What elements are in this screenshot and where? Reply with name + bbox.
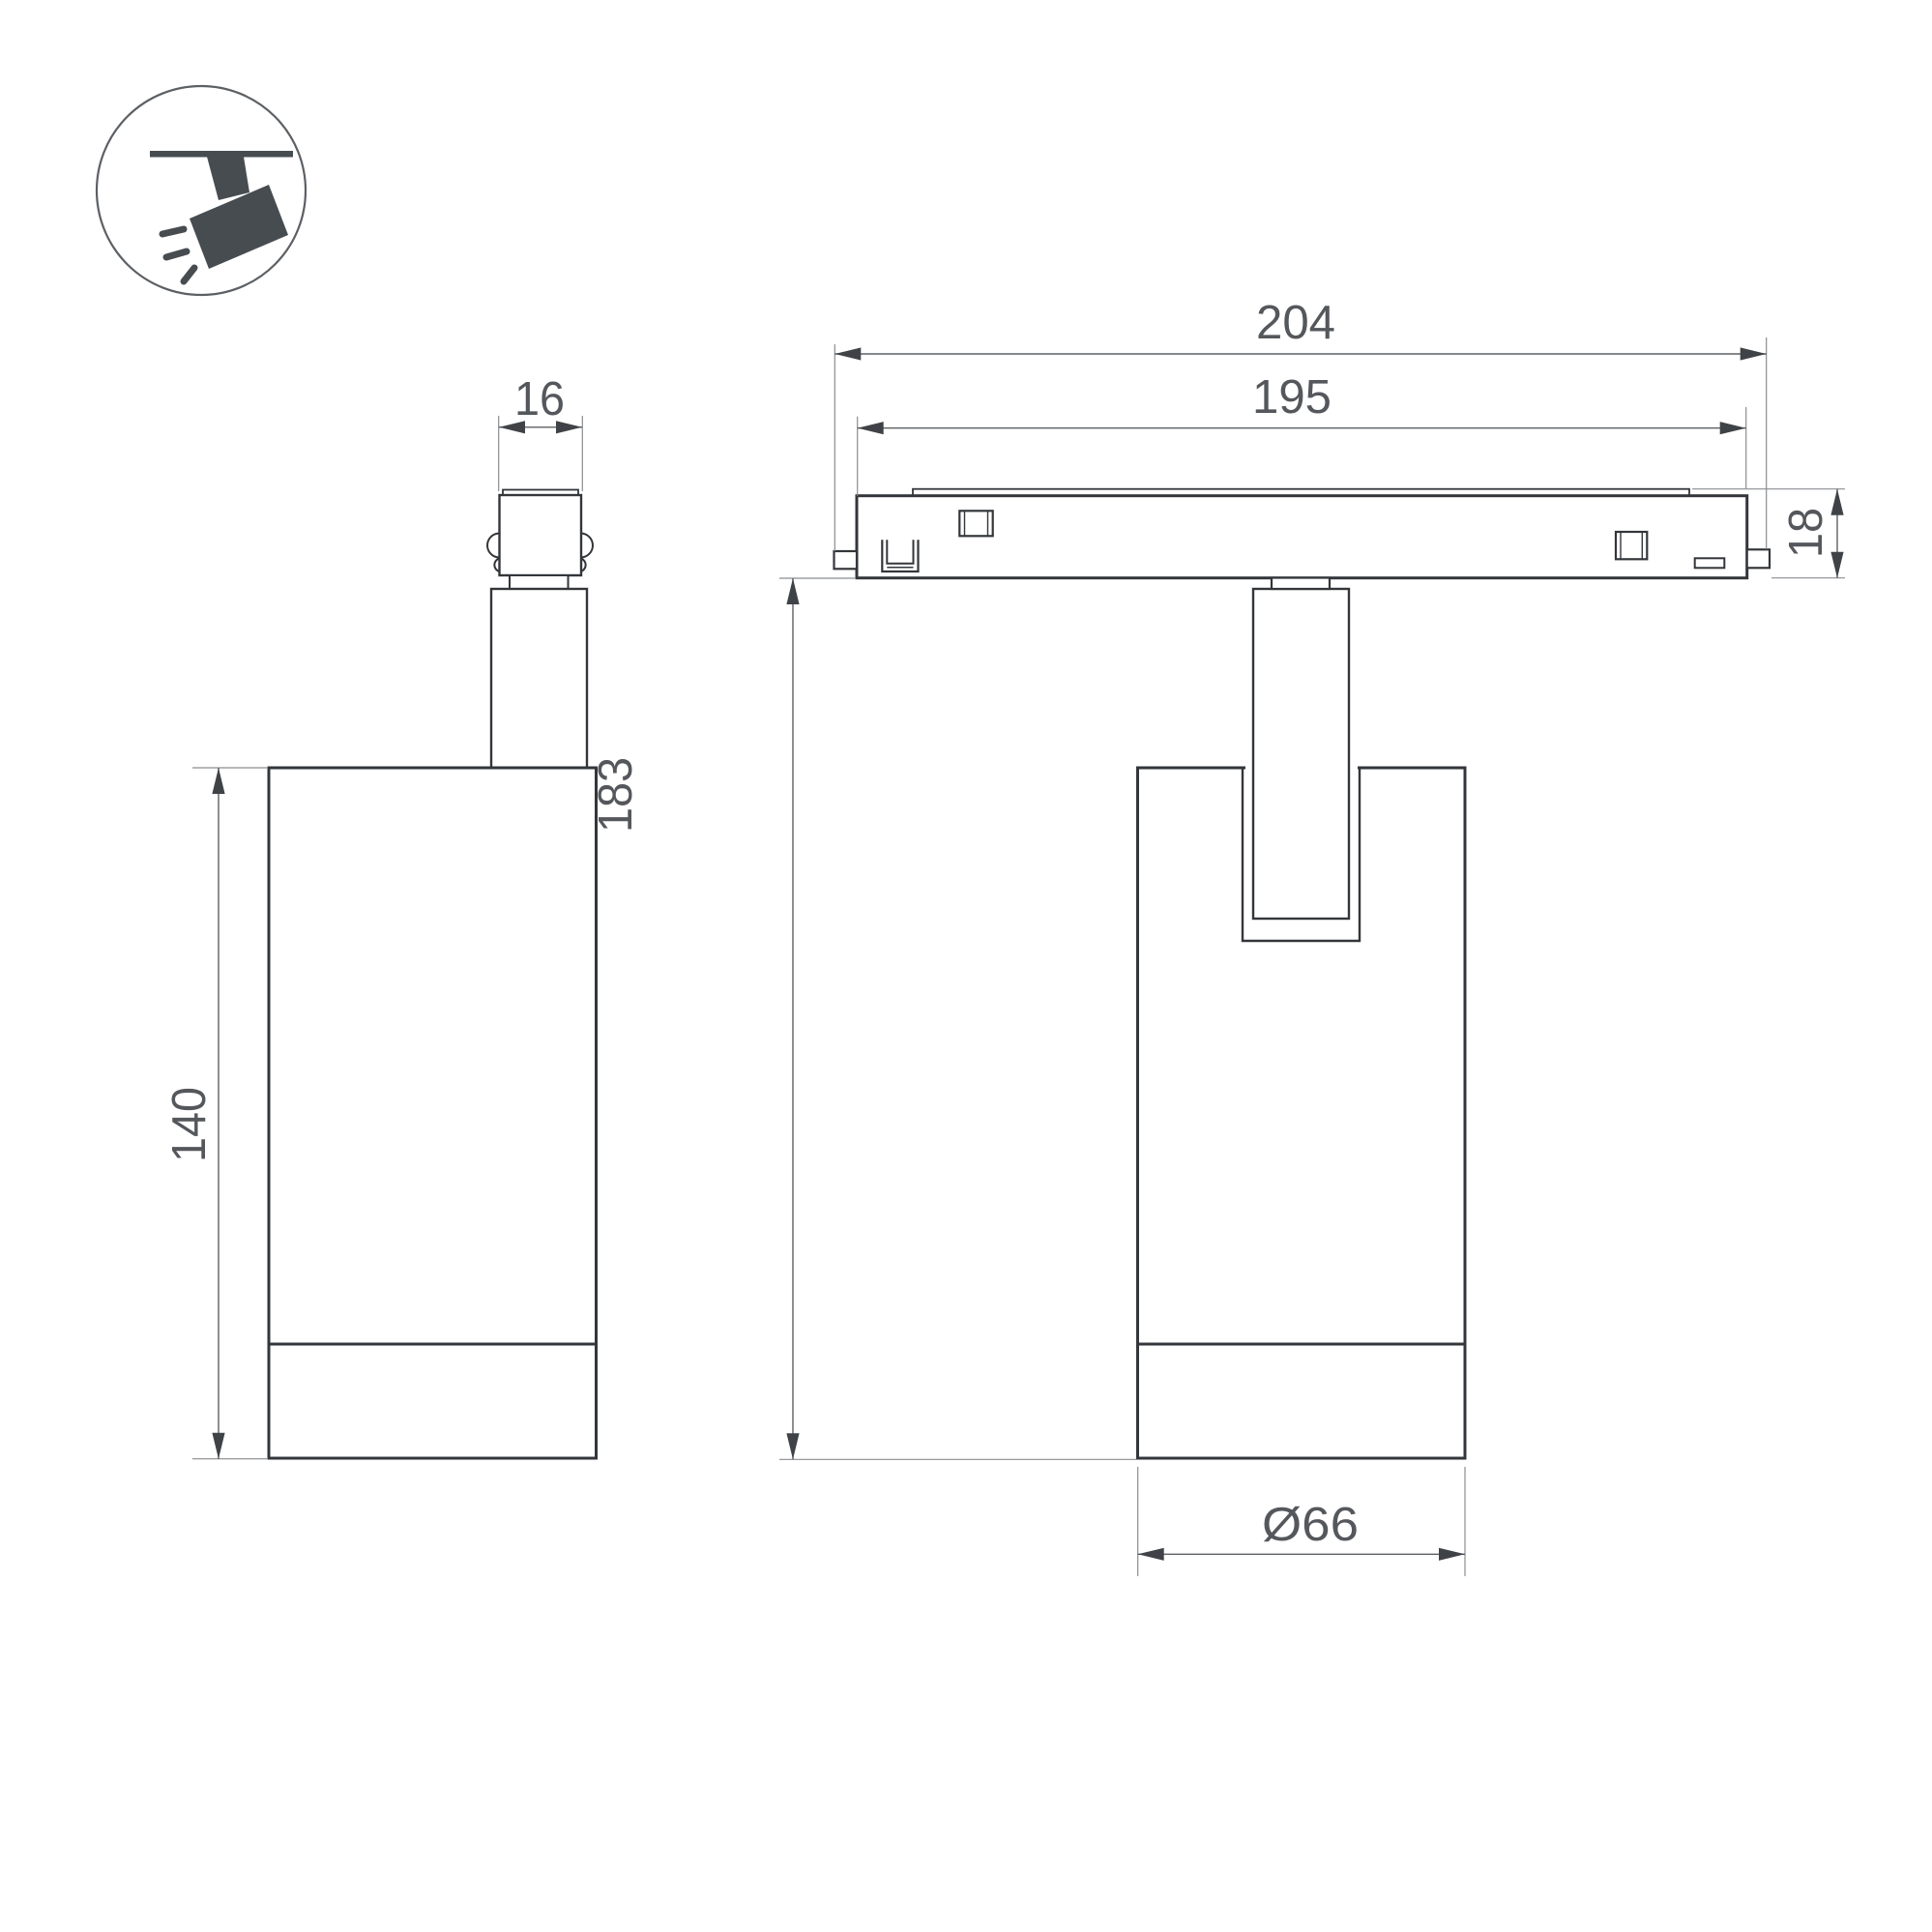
icon-mount-stem: [207, 157, 249, 200]
dimension-body-diameter: Ø66: [1138, 1467, 1465, 1576]
technical-drawing-page: 16 140 204 195 183: [0, 0, 1932, 1932]
dimension-track-body-length: 195: [858, 371, 1746, 496]
icon-circle: [97, 86, 306, 295]
technical-drawing-canvas: 16 140 204 195 183: [0, 0, 1932, 1932]
icon-light-rays: [162, 229, 194, 281]
track-adapter: [500, 495, 582, 575]
lamp-body-side: [269, 768, 597, 1458]
dim-label-diameter-66: Ø66: [1262, 1499, 1359, 1551]
dim-label-183: 183: [590, 757, 642, 833]
arrowhead-right: [1741, 347, 1767, 360]
arrowhead-left: [858, 422, 884, 434]
arrowhead-top: [212, 768, 224, 794]
dim-label-16: 16: [514, 373, 565, 425]
dim-label-18: 18: [1780, 508, 1832, 558]
arrowhead-left: [834, 347, 861, 360]
dimension-overall-height: 183: [590, 578, 1136, 1459]
lamp-stem-side: [491, 589, 587, 768]
adapter-neck: [510, 575, 569, 589]
dim-label-195: 195: [1252, 371, 1332, 424]
arrowhead-right: [1439, 1548, 1465, 1561]
icon-spotlight-head: [190, 185, 288, 269]
product-icon: [97, 86, 306, 295]
rail-end-tab-left: [834, 551, 858, 569]
icon-ceiling-bar: [150, 151, 293, 158]
arrowhead-bottom: [212, 1433, 224, 1459]
arrowhead-bottom: [1830, 552, 1843, 578]
arrowhead-right: [1720, 422, 1746, 434]
arrowhead-top: [786, 578, 799, 604]
dim-label-204: 204: [1256, 297, 1335, 349]
side-view: [269, 490, 597, 1459]
arrowhead-left: [1138, 1548, 1164, 1561]
arrowhead-bottom: [786, 1433, 799, 1459]
track-rail: [834, 489, 1771, 578]
arrowhead-top: [1830, 489, 1843, 515]
lamp-stem-front: [1253, 589, 1349, 919]
rail-end-tab-right: [1747, 549, 1770, 568]
rail-connector-nub: [1272, 578, 1330, 590]
dim-label-140: 140: [163, 1087, 216, 1162]
front-view-lamp: [1138, 578, 1466, 1459]
dimension-adapter-width: 16: [499, 373, 583, 491]
dimension-body-height: 140: [163, 768, 267, 1459]
